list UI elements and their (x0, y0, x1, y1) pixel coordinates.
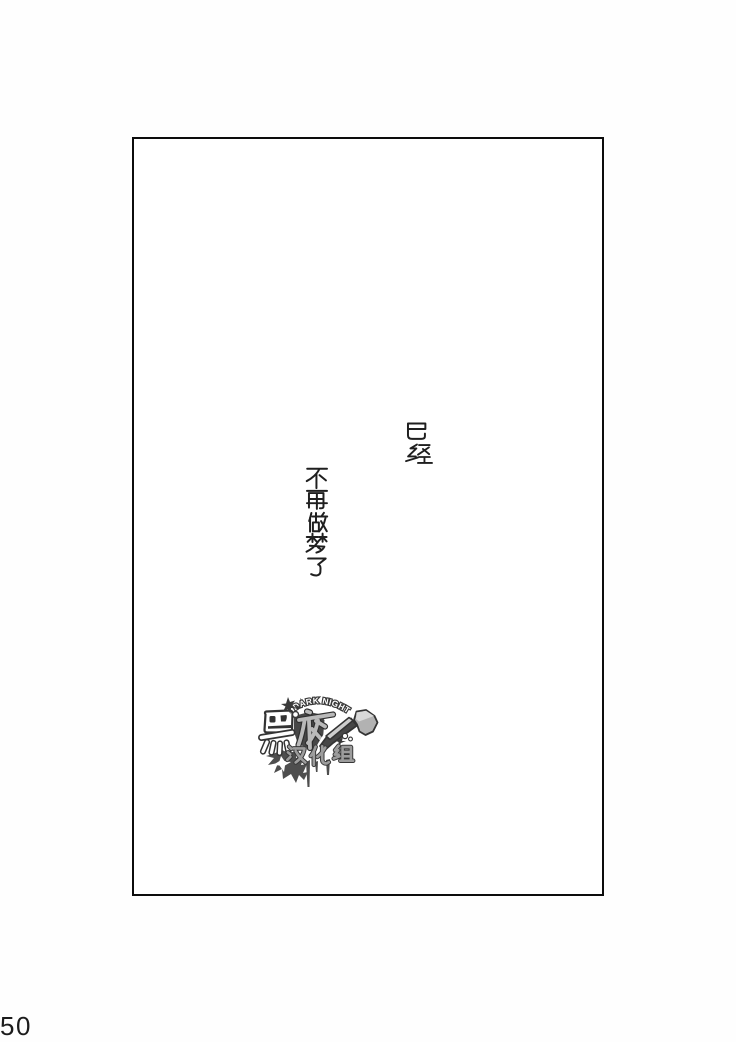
svg-text:DARK NIGHT: DARK NIGHT (291, 695, 353, 715)
